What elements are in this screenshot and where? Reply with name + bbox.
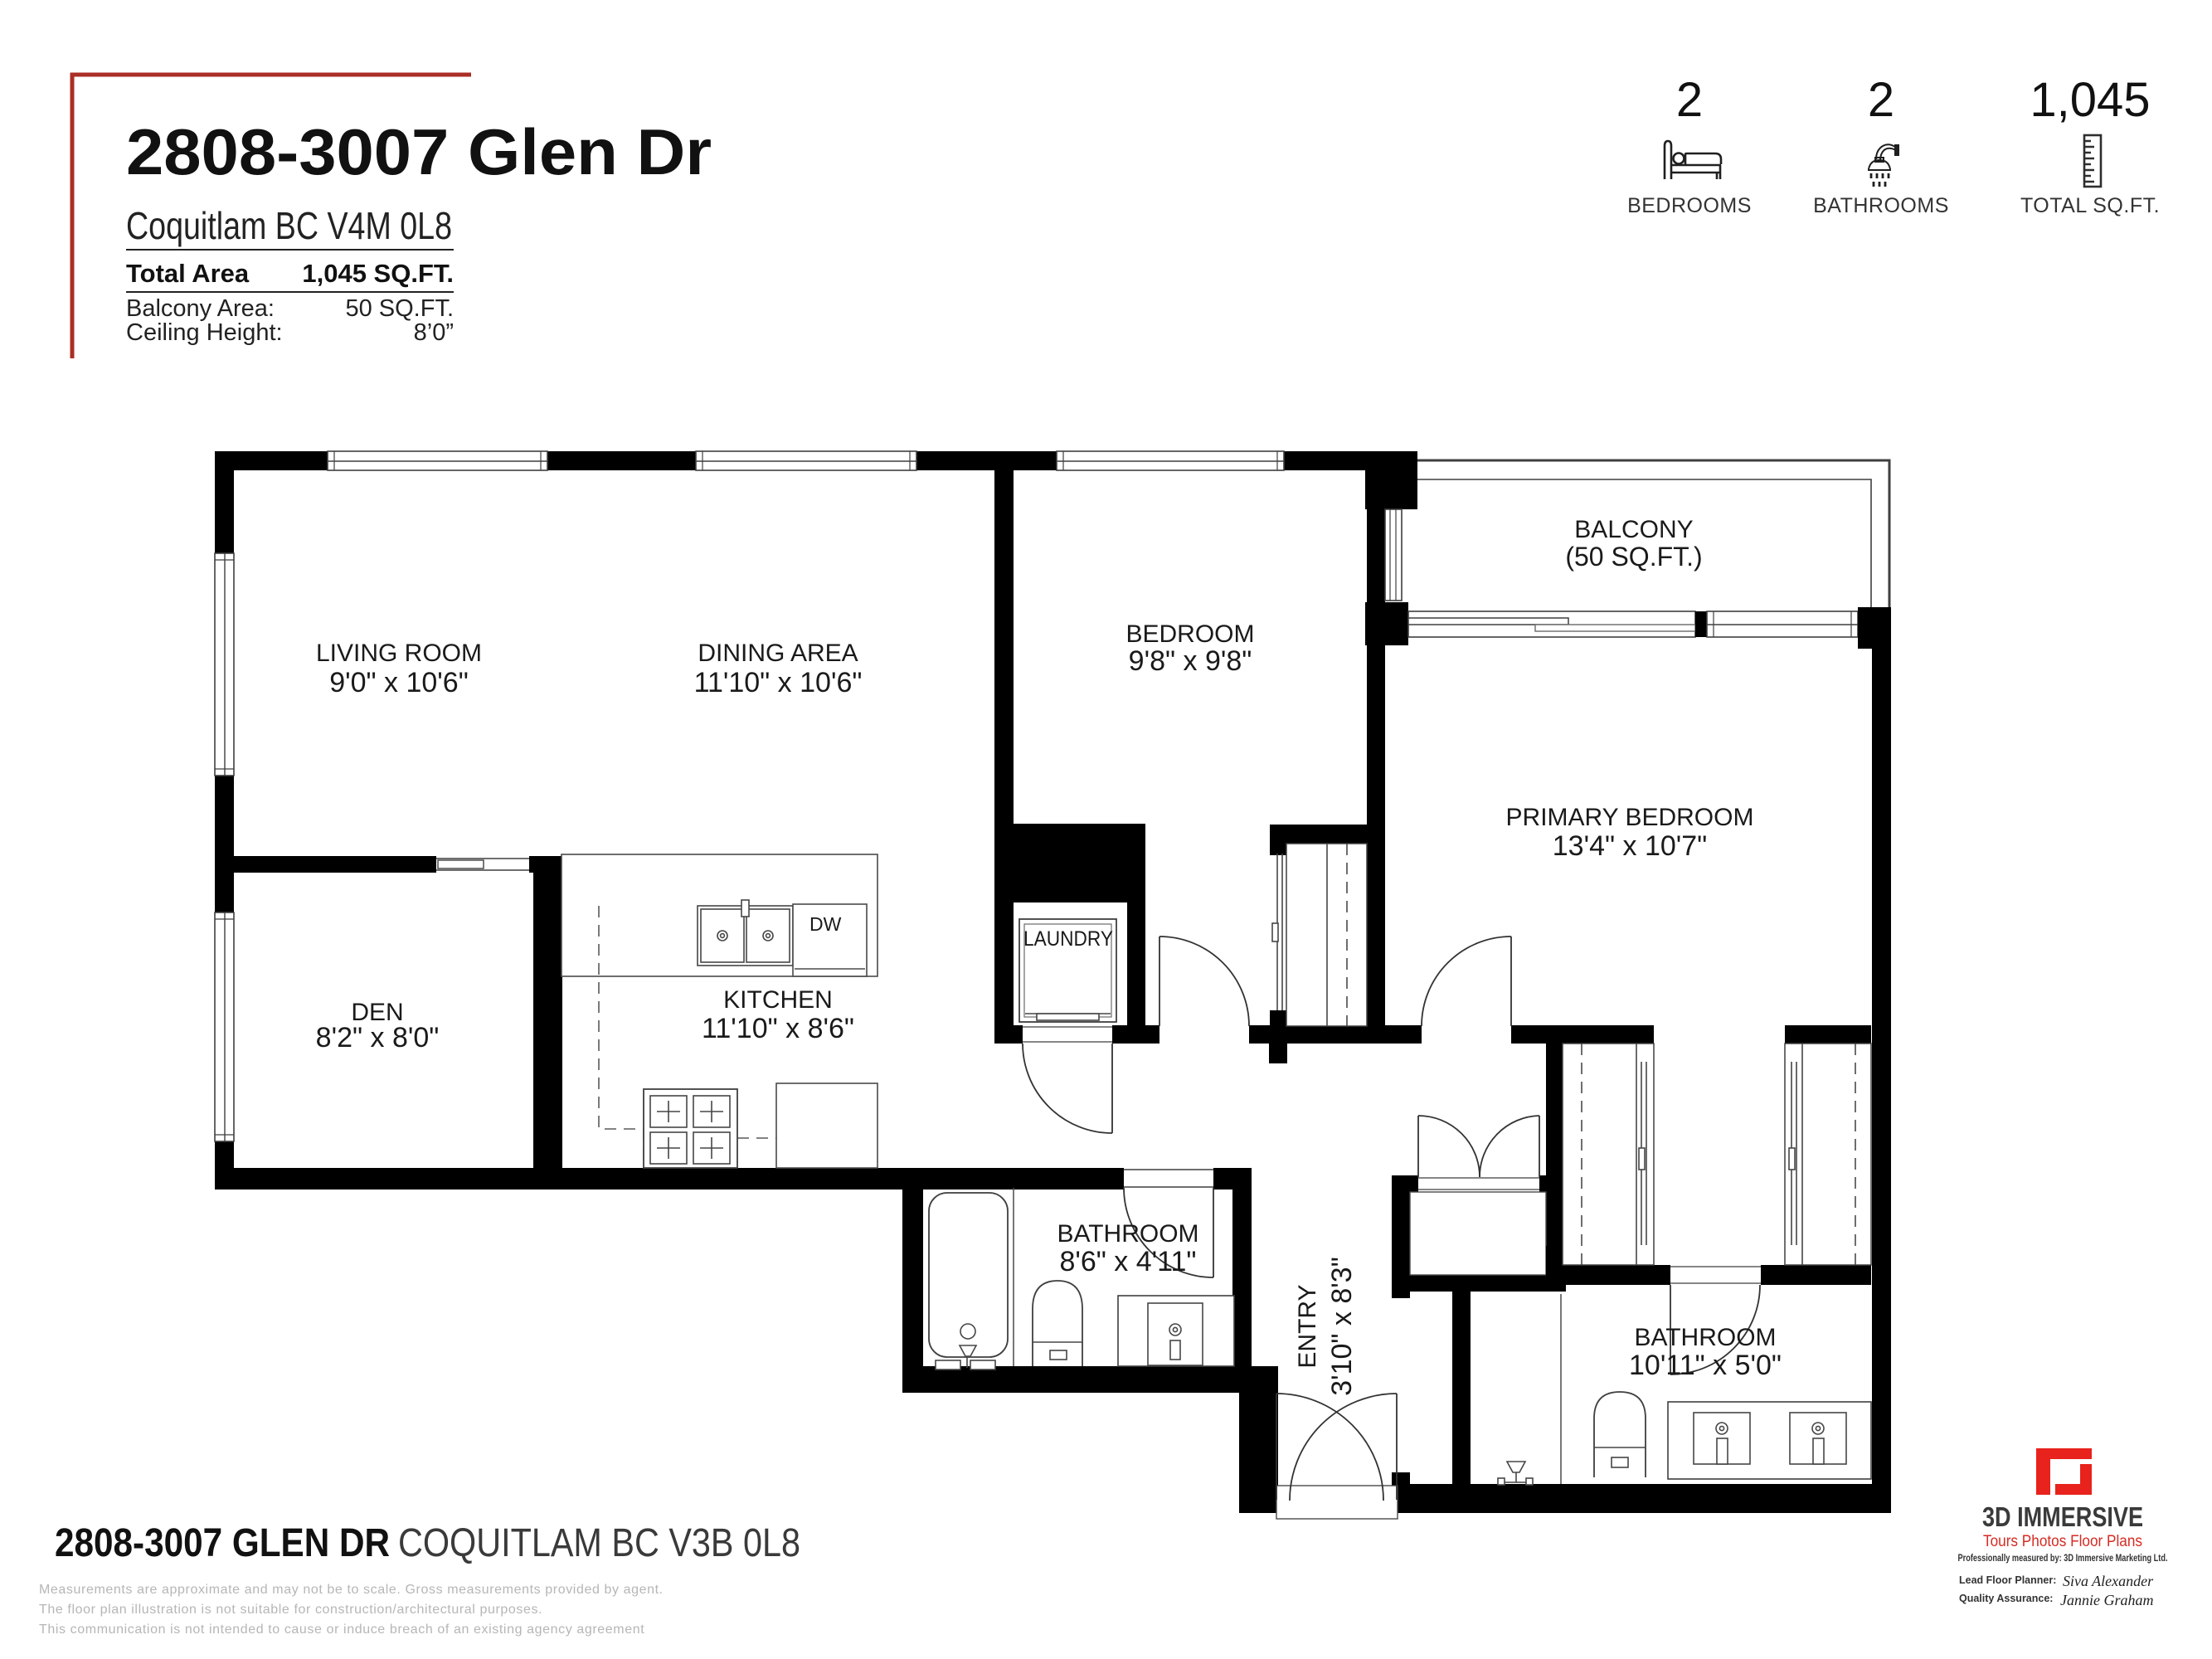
svg-text:DINING AREA: DINING AREA xyxy=(698,640,858,667)
svg-text:TOTAL SQ.FT.: TOTAL SQ.FT. xyxy=(2020,194,2160,217)
svg-text:10'11" x 5'0": 10'11" x 5'0" xyxy=(1629,1350,1782,1381)
svg-text:Siva Alexander: Siva Alexander xyxy=(2063,1573,2154,1589)
svg-text:8'2" x 8'0": 8'2" x 8'0" xyxy=(316,1022,440,1053)
svg-text:COQUITLAM BC V3B 0L8: COQUITLAM BC V3B 0L8 xyxy=(398,1521,800,1565)
svg-text:DW: DW xyxy=(809,913,842,935)
svg-text:BEDROOMS: BEDROOMS xyxy=(1627,194,1752,217)
svg-text:1,045 SQ.FT.: 1,045 SQ.FT. xyxy=(302,259,454,288)
svg-text:Balcony Area:: Balcony Area: xyxy=(126,295,275,322)
svg-text:KITCHEN: KITCHEN xyxy=(723,986,833,1014)
svg-text:Measurements are approximate a: Measurements are approximate and may not… xyxy=(39,1583,664,1597)
svg-text:3D IMMERSIVE: 3D IMMERSIVE xyxy=(1982,1501,2143,1532)
svg-text:2808-3007 Glen Dr: 2808-3007 Glen Dr xyxy=(126,115,712,188)
svg-text:9'0" x 10'6": 9'0" x 10'6" xyxy=(329,667,469,698)
svg-text:(50 SQ.FT.): (50 SQ.FT.) xyxy=(1565,542,1702,572)
svg-text:Coquitlam BC V4M 0L8: Coquitlam BC V4M 0L8 xyxy=(126,204,452,247)
svg-text:1,045: 1,045 xyxy=(2030,73,2150,127)
svg-text:BATHROOM: BATHROOM xyxy=(1634,1324,1776,1351)
svg-text:2808-3007 GLEN DR: 2808-3007 GLEN DR xyxy=(55,1521,390,1565)
svg-text:8'6" x 4'11": 8'6" x 4'11" xyxy=(1059,1246,1196,1277)
svg-text:50 SQ.FT.: 50 SQ.FT. xyxy=(345,295,454,322)
svg-text:BEDROOM: BEDROOM xyxy=(1125,620,1254,648)
svg-text:8’0”: 8’0” xyxy=(414,319,454,346)
svg-text:Professionally measured by: 3D: Professionally measured by: 3D Immersive… xyxy=(1958,1554,2168,1564)
svg-text:ENTRY: ENTRY xyxy=(1294,1284,1321,1368)
svg-text:This communication is not inte: This communication is not intended to ca… xyxy=(39,1623,644,1637)
svg-text:9'8" x 9'8": 9'8" x 9'8" xyxy=(1129,645,1252,677)
svg-text:11'10" x 8'6": 11'10" x 8'6" xyxy=(702,1013,854,1044)
svg-text:Tours Photos Floor Plans: Tours Photos Floor Plans xyxy=(1983,1533,2142,1550)
svg-text:Quality Assurance:: Quality Assurance: xyxy=(1959,1593,2053,1604)
svg-text:2: 2 xyxy=(1868,73,1894,127)
svg-text:BATHROOM: BATHROOM xyxy=(1057,1220,1198,1248)
svg-text:LAUNDRY: LAUNDRY xyxy=(1023,927,1113,951)
svg-text:Ceiling Height:: Ceiling Height: xyxy=(126,319,283,346)
svg-text:11'10" x 10'6": 11'10" x 10'6" xyxy=(694,667,863,698)
svg-text:BATHROOMS: BATHROOMS xyxy=(1813,194,1949,217)
svg-text:PRIMARY BEDROOM: PRIMARY BEDROOM xyxy=(1506,804,1754,831)
svg-text:Jannie Graham: Jannie Graham xyxy=(2060,1592,2153,1608)
svg-text:BALCONY: BALCONY xyxy=(1574,516,1693,543)
svg-text:The floor plan illustration is: The floor plan illustration is not suita… xyxy=(39,1603,542,1617)
svg-text:Lead Floor Planner:: Lead Floor Planner: xyxy=(1959,1574,2056,1586)
svg-text:2: 2 xyxy=(1676,73,1703,127)
svg-text:Total Area: Total Area xyxy=(126,259,250,288)
svg-text:13'4" x 10'7": 13'4" x 10'7" xyxy=(1553,830,1707,862)
svg-text:LIVING ROOM: LIVING ROOM xyxy=(316,640,482,667)
svg-text:3'10" x 8'3": 3'10" x 8'3" xyxy=(1326,1257,1358,1396)
